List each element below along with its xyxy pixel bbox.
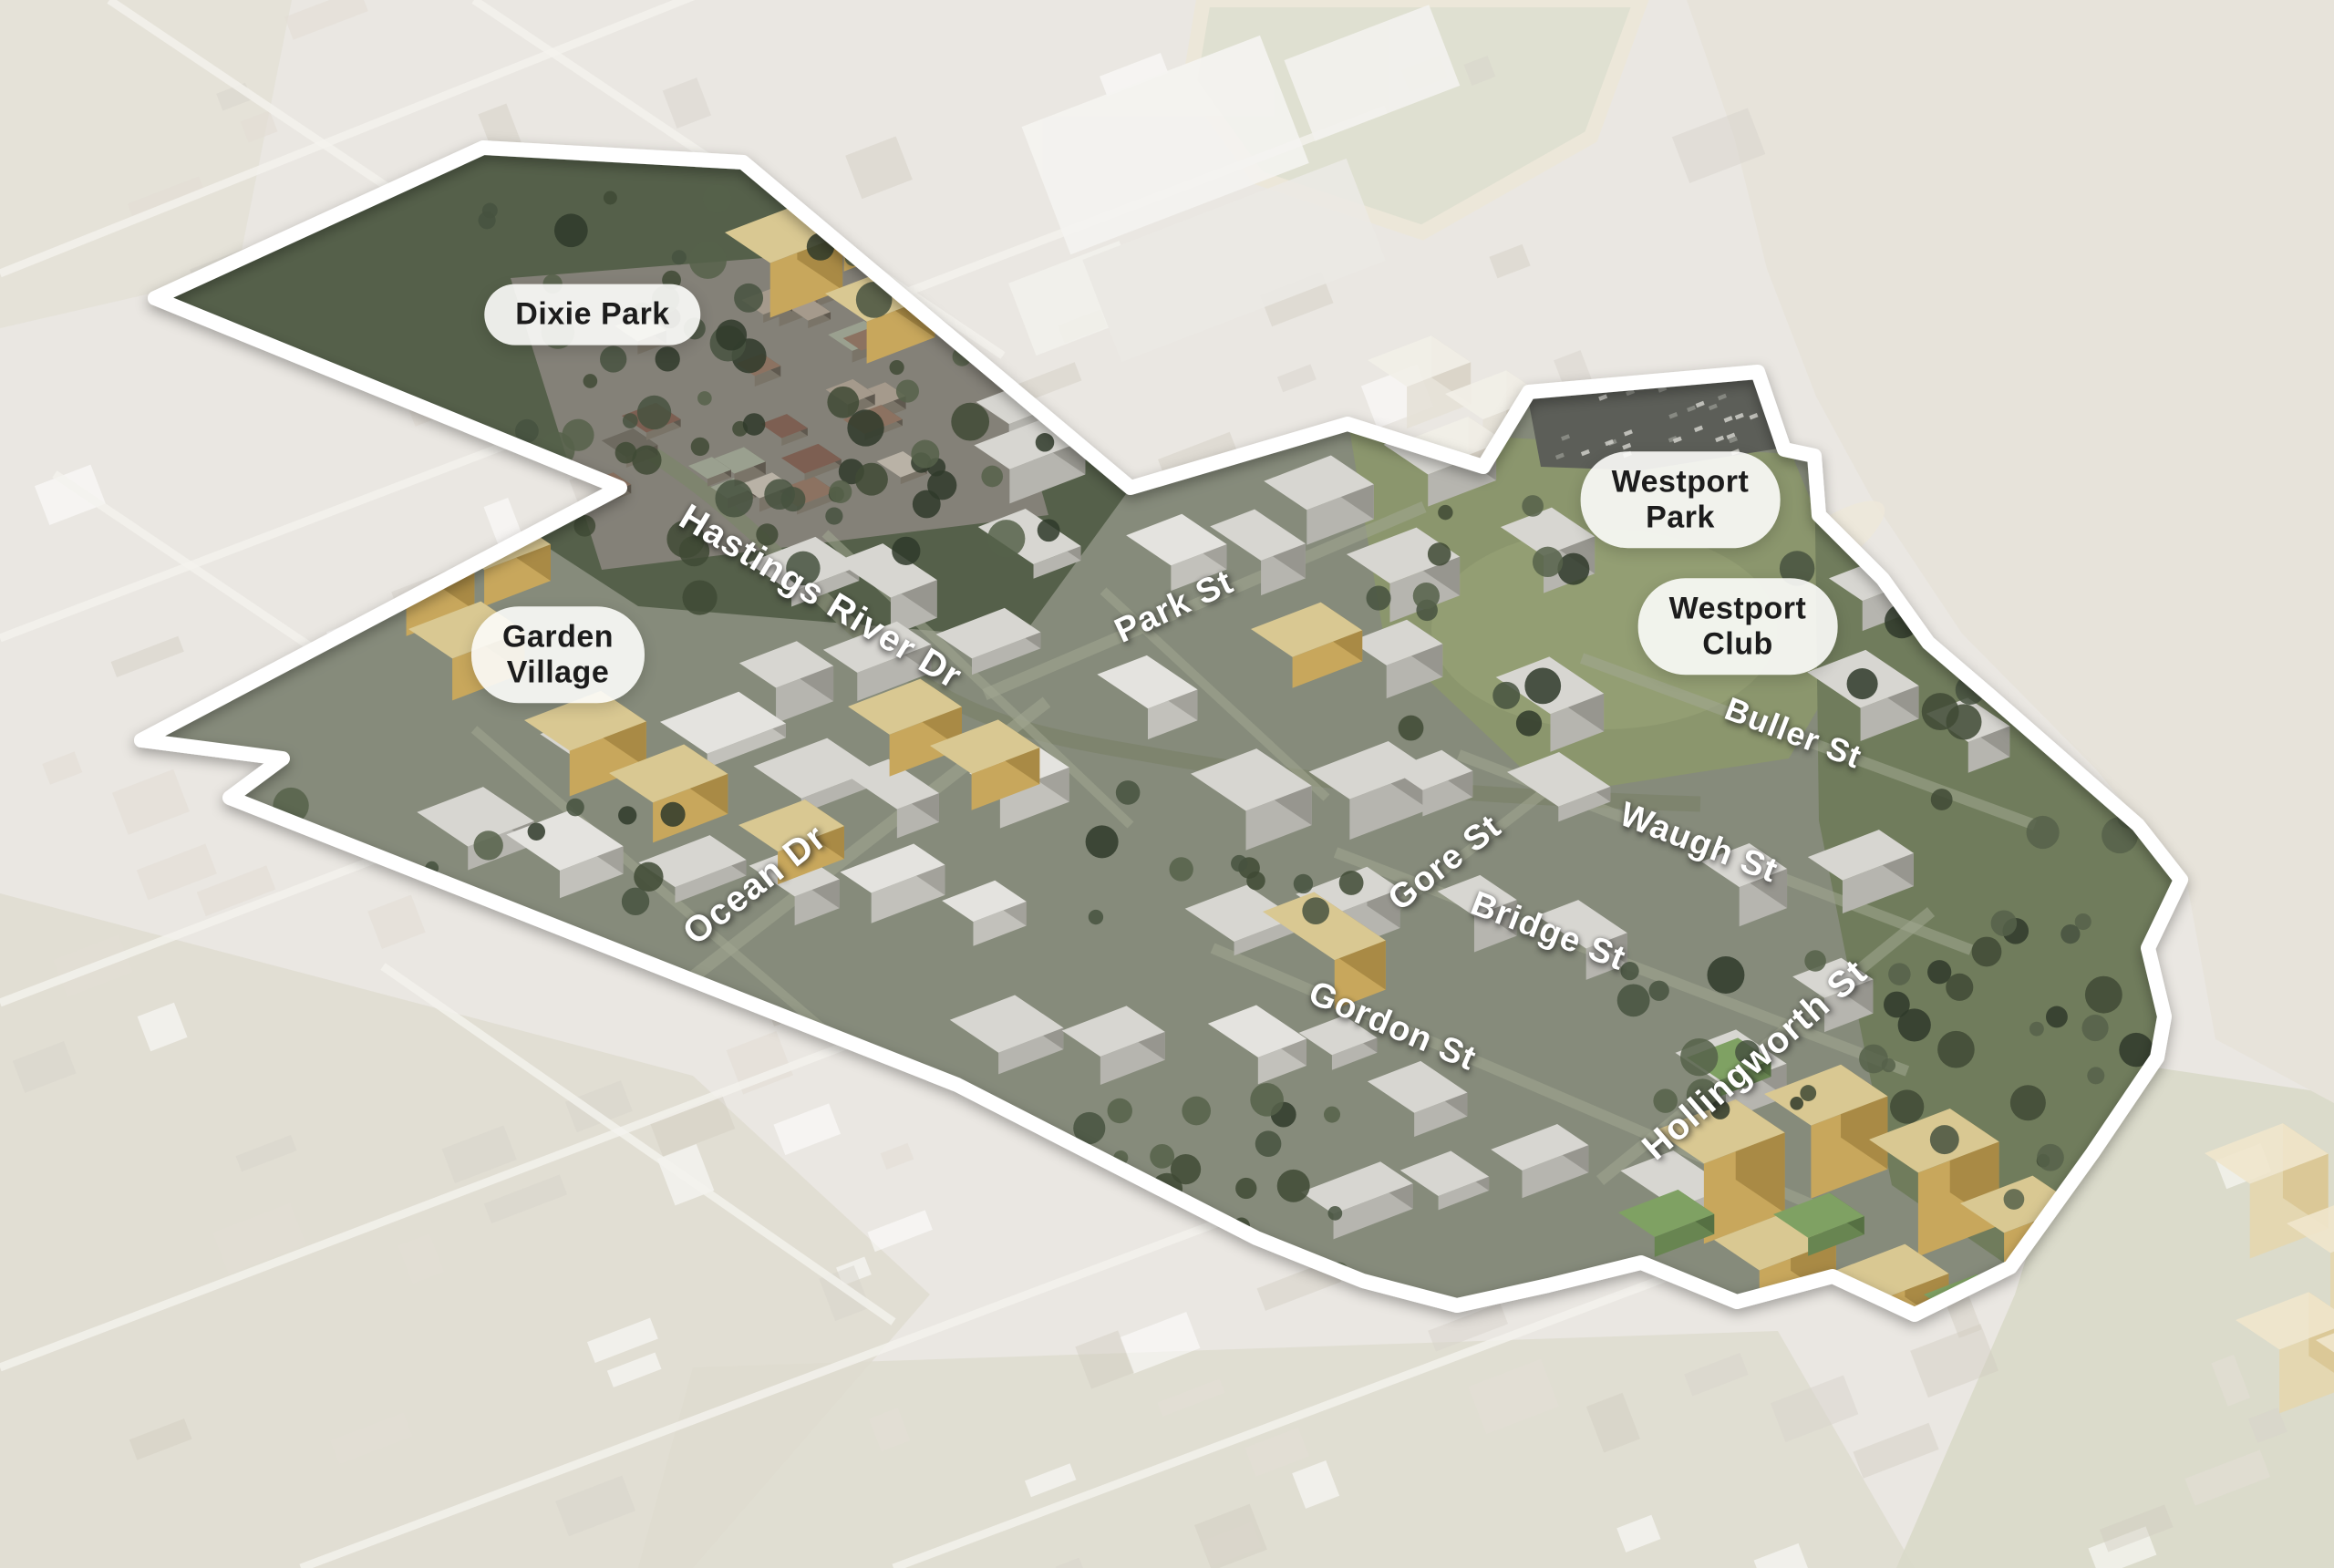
aerial-map xyxy=(0,0,2334,1568)
grass-highlight xyxy=(1431,529,1778,729)
aerial-map-stage: Dixie ParkGardenVillageWestportParkWestp… xyxy=(0,0,2334,1568)
